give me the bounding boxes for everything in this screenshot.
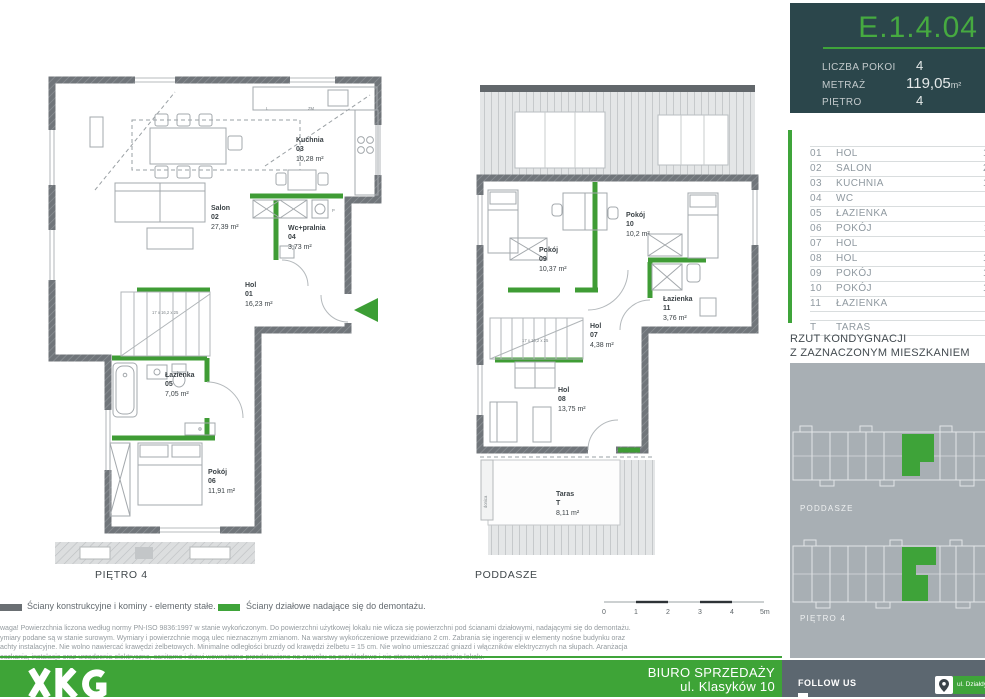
spec-rooms: LICZBA POKOI 4 <box>822 58 982 73</box>
table-gap <box>810 312 985 320</box>
legend-swatch-partition <box>218 604 240 611</box>
svg-text:Hol: Hol <box>245 282 256 289</box>
floorplan-sheet: { "unit_card": { "code": "E.1.4.04", "sp… <box>0 0 985 697</box>
svg-text:Łazienka: Łazienka <box>663 296 693 303</box>
footer-brand-bar: BIURO SPRZEDAŻY ul. Klasyków 10 <box>0 660 782 697</box>
svg-text:T: T <box>556 500 561 507</box>
svg-text:10,37 m²: 10,37 m² <box>539 266 567 273</box>
legend-swatch-structural <box>0 604 22 611</box>
svg-text:2: 2 <box>666 609 670 616</box>
table-row: 02SALON27,39 <box>810 162 985 177</box>
attic-dashed-lines <box>95 92 370 190</box>
svg-text:04: 04 <box>288 234 296 241</box>
svg-text:09: 09 <box>539 256 547 263</box>
svg-text:Hol: Hol <box>558 387 569 394</box>
washer-annotation: P <box>332 208 335 213</box>
scale-bar: 0 1 2 3 4 5m <box>598 594 778 620</box>
svg-text:10,28 m²: 10,28 m² <box>296 156 324 163</box>
svg-text:03: 03 <box>296 146 304 153</box>
svg-text:3,76 m²: 3,76 m² <box>663 315 687 322</box>
svg-text:08: 08 <box>558 396 566 403</box>
terrace: donica <box>480 457 655 555</box>
footer-divider <box>0 656 782 658</box>
unit-info-card: E.1.4.04 LICZBA POKOI 4 METRAŻ 119,05m² … <box>790 3 985 113</box>
door-arcs <box>207 260 353 418</box>
door-arcs <box>588 270 650 454</box>
svg-text:Taras: Taras <box>556 491 574 498</box>
table-row: 04WC3,73 <box>810 192 985 207</box>
entrance-arrow-icon <box>354 298 378 322</box>
svg-text:Pokój: Pokój <box>539 247 558 254</box>
footer-social-bar: FOLLOW US ul. Działdy 7 <box>782 660 985 697</box>
svg-text:Wc+pralnia: Wc+pralnia <box>288 225 326 232</box>
svg-text:3,73 m²: 3,73 m² <box>288 244 312 251</box>
mini-plan-pietro4 <box>790 538 985 610</box>
svg-text:10: 10 <box>626 221 634 228</box>
spec-area: METRAŻ 119,05m² <box>822 75 982 92</box>
location-panel: PODDASZE PIĘTRO 4 <box>790 363 985 658</box>
legend-partition: Ściany działowe nadające się do demontaż… <box>246 601 426 611</box>
svg-text:Hol: Hol <box>590 323 601 330</box>
sales-office-address: BIURO SPRZEDAŻY ul. Klasyków 10 <box>648 666 775 694</box>
address-badge[interactable]: ul. Działdy 7 <box>953 676 985 694</box>
room-table: 01HOL16,23 02SALON27,39 03KUCHNIA10,28 0… <box>810 146 985 336</box>
accent-underline <box>823 47 985 49</box>
svg-text:13,75 m²: 13,75 m² <box>558 406 586 413</box>
spec-floor: PIĘTRO 4 <box>822 93 982 108</box>
follow-us-label: FOLLOW US <box>798 678 857 688</box>
svg-text:7,05 m²: 7,05 m² <box>165 391 189 398</box>
highlighted-unit <box>902 434 934 476</box>
svg-text:3: 3 <box>698 609 702 616</box>
table-row: 01HOL16,23 <box>810 146 985 162</box>
svg-text:05: 05 <box>165 381 173 388</box>
table-row: 09POKÓJ10,37 <box>810 267 985 282</box>
svg-text:07: 07 <box>590 332 598 339</box>
roof-band <box>480 85 755 178</box>
mini-plan-poddasze <box>790 422 985 490</box>
location-pin-icon[interactable] <box>935 676 953 694</box>
svg-text:Pokój: Pokój <box>208 469 227 476</box>
table-row: 10POKÓJ10,20 <box>810 282 985 297</box>
floor-plan-pietro4: 17 x 16,2 x 25 <box>40 70 460 590</box>
svg-text:0: 0 <box>602 609 606 616</box>
svg-text:11: 11 <box>663 305 671 312</box>
staircase <box>121 292 210 356</box>
developer-logo <box>8 668 140 697</box>
plan-caption-poddasze: PODDASZE <box>475 569 538 581</box>
furniture <box>90 87 378 516</box>
svg-text:10,2 m²: 10,2 m² <box>626 231 650 238</box>
dishwasher-annotation: ZM <box>308 106 315 111</box>
unit-code: E.1.4.04 <box>858 11 978 45</box>
facebook-icon[interactable] <box>798 693 808 697</box>
floor-plan-poddasze: 17 x 16,2 x 25 donica Pokój 09 10,37 m² … <box>460 70 780 590</box>
table-row: 11ŁAZIENKA3,76 <box>810 297 985 312</box>
stair-note: 17 x 16,2 x 25 <box>522 338 549 343</box>
svg-text:Salon: Salon <box>211 205 230 212</box>
plan-caption-pietro4: PIĘTRO 4 <box>95 569 148 581</box>
svg-text:01: 01 <box>245 291 253 298</box>
balcony-strip <box>55 542 255 564</box>
location-section-title: RZUT KONDYGNACJI Z ZAZNACZONYM MIESZKANI… <box>790 332 970 360</box>
svg-text:5m: 5m <box>760 609 770 616</box>
svg-text:16,23 m²: 16,23 m² <box>245 301 273 308</box>
table-accent-bar <box>788 130 792 323</box>
mini-plan-label-poddasze: PODDASZE <box>800 504 854 513</box>
table-row: 03KUCHNIA10,28 <box>810 177 985 192</box>
unit-outline <box>480 178 755 450</box>
svg-text:Kuchnia: Kuchnia <box>296 137 324 144</box>
table-row: 06POKÓJ11,91 <box>810 222 985 237</box>
svg-text:06: 06 <box>208 478 216 485</box>
svg-text:02: 02 <box>211 214 219 221</box>
legend-structural: Ściany konstrukcyjne i kominy - elementy… <box>27 601 216 611</box>
svg-text:8,11 m²: 8,11 m² <box>556 510 580 517</box>
svg-text:1: 1 <box>634 609 638 616</box>
svg-text:27,39 m²: 27,39 m² <box>211 224 239 231</box>
svg-text:Pokój: Pokój <box>626 212 645 219</box>
table-row: 07HOL4,38 <box>810 237 985 252</box>
svg-text:4,38 m²: 4,38 m² <box>590 342 614 349</box>
svg-text:4: 4 <box>730 609 734 616</box>
planter-label: donica <box>483 495 488 508</box>
table-row: 08HOL13,75 <box>810 252 985 267</box>
svg-text:11,91 m²: 11,91 m² <box>208 488 236 495</box>
table-row: 05ŁAZIENKA7,05 <box>810 207 985 222</box>
svg-text:Łazienka: Łazienka <box>165 372 195 379</box>
windows <box>48 76 383 535</box>
stair-note: 17 x 16,2 x 25 <box>152 310 179 315</box>
mini-plan-label-pietro4: PIĘTRO 4 <box>800 614 846 623</box>
